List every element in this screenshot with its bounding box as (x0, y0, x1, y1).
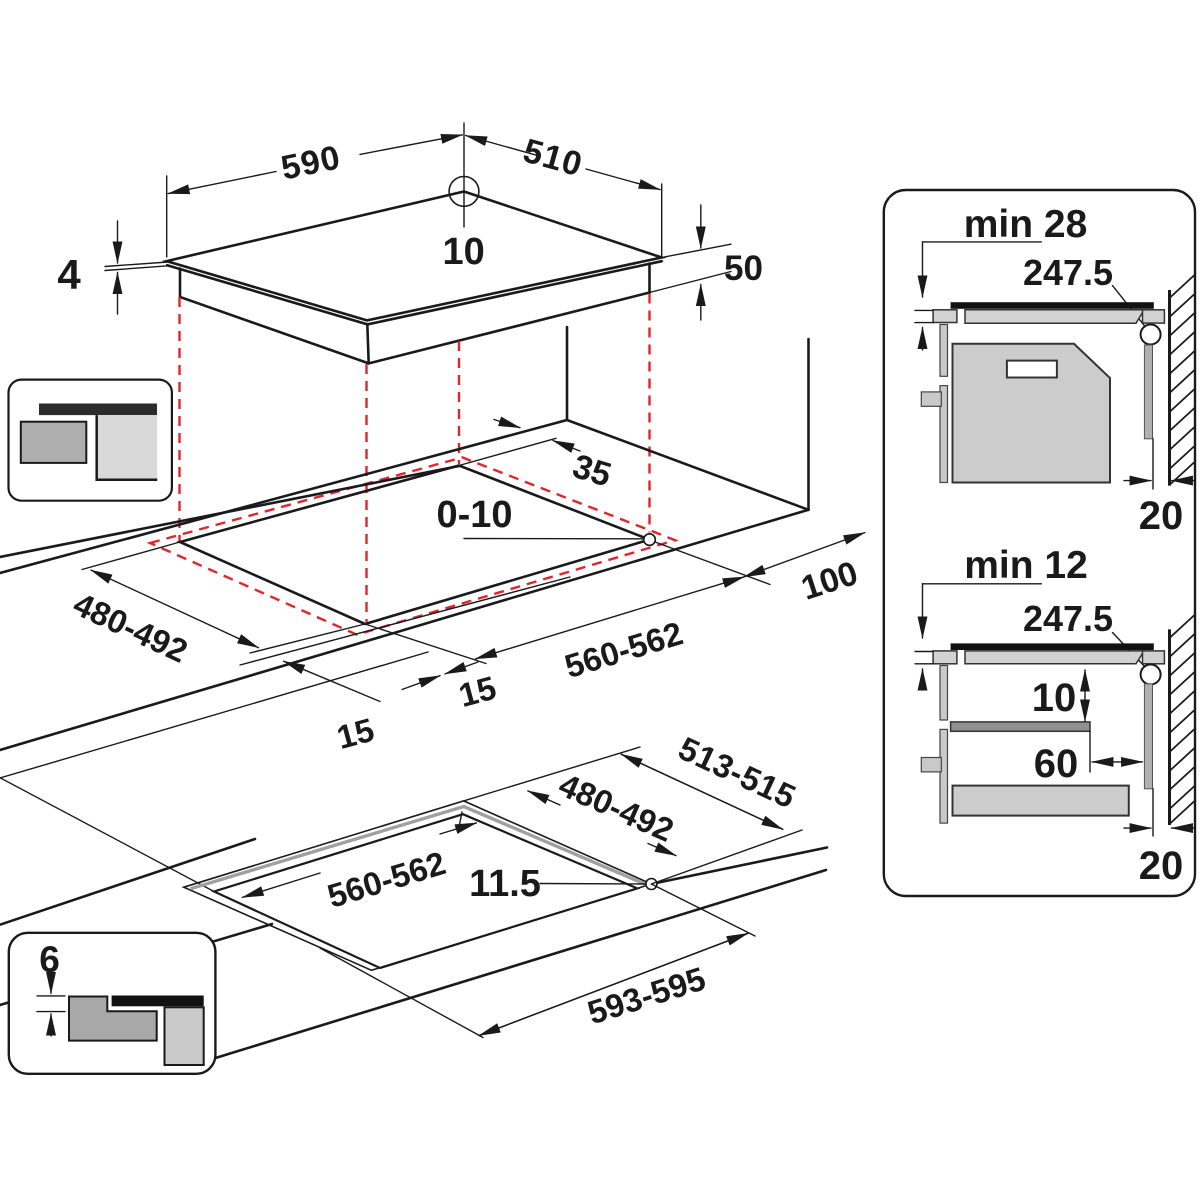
svg-text:20: 20 (1139, 844, 1184, 888)
svg-text:6: 6 (39, 939, 60, 980)
svg-text:50: 50 (724, 249, 763, 288)
svg-text:60: 60 (1034, 742, 1079, 786)
svg-text:0-10: 0-10 (436, 494, 512, 536)
svg-text:10: 10 (442, 231, 484, 273)
svg-text:min 12: min 12 (964, 544, 1088, 587)
svg-text:11.5: 11.5 (469, 863, 541, 905)
svg-text:4: 4 (57, 251, 81, 298)
svg-text:20: 20 (1139, 494, 1184, 538)
svg-text:10: 10 (1032, 676, 1077, 720)
svg-text:247.5: 247.5 (1023, 252, 1113, 293)
svg-text:min 28: min 28 (964, 203, 1088, 246)
svg-text:247.5: 247.5 (1023, 598, 1113, 639)
